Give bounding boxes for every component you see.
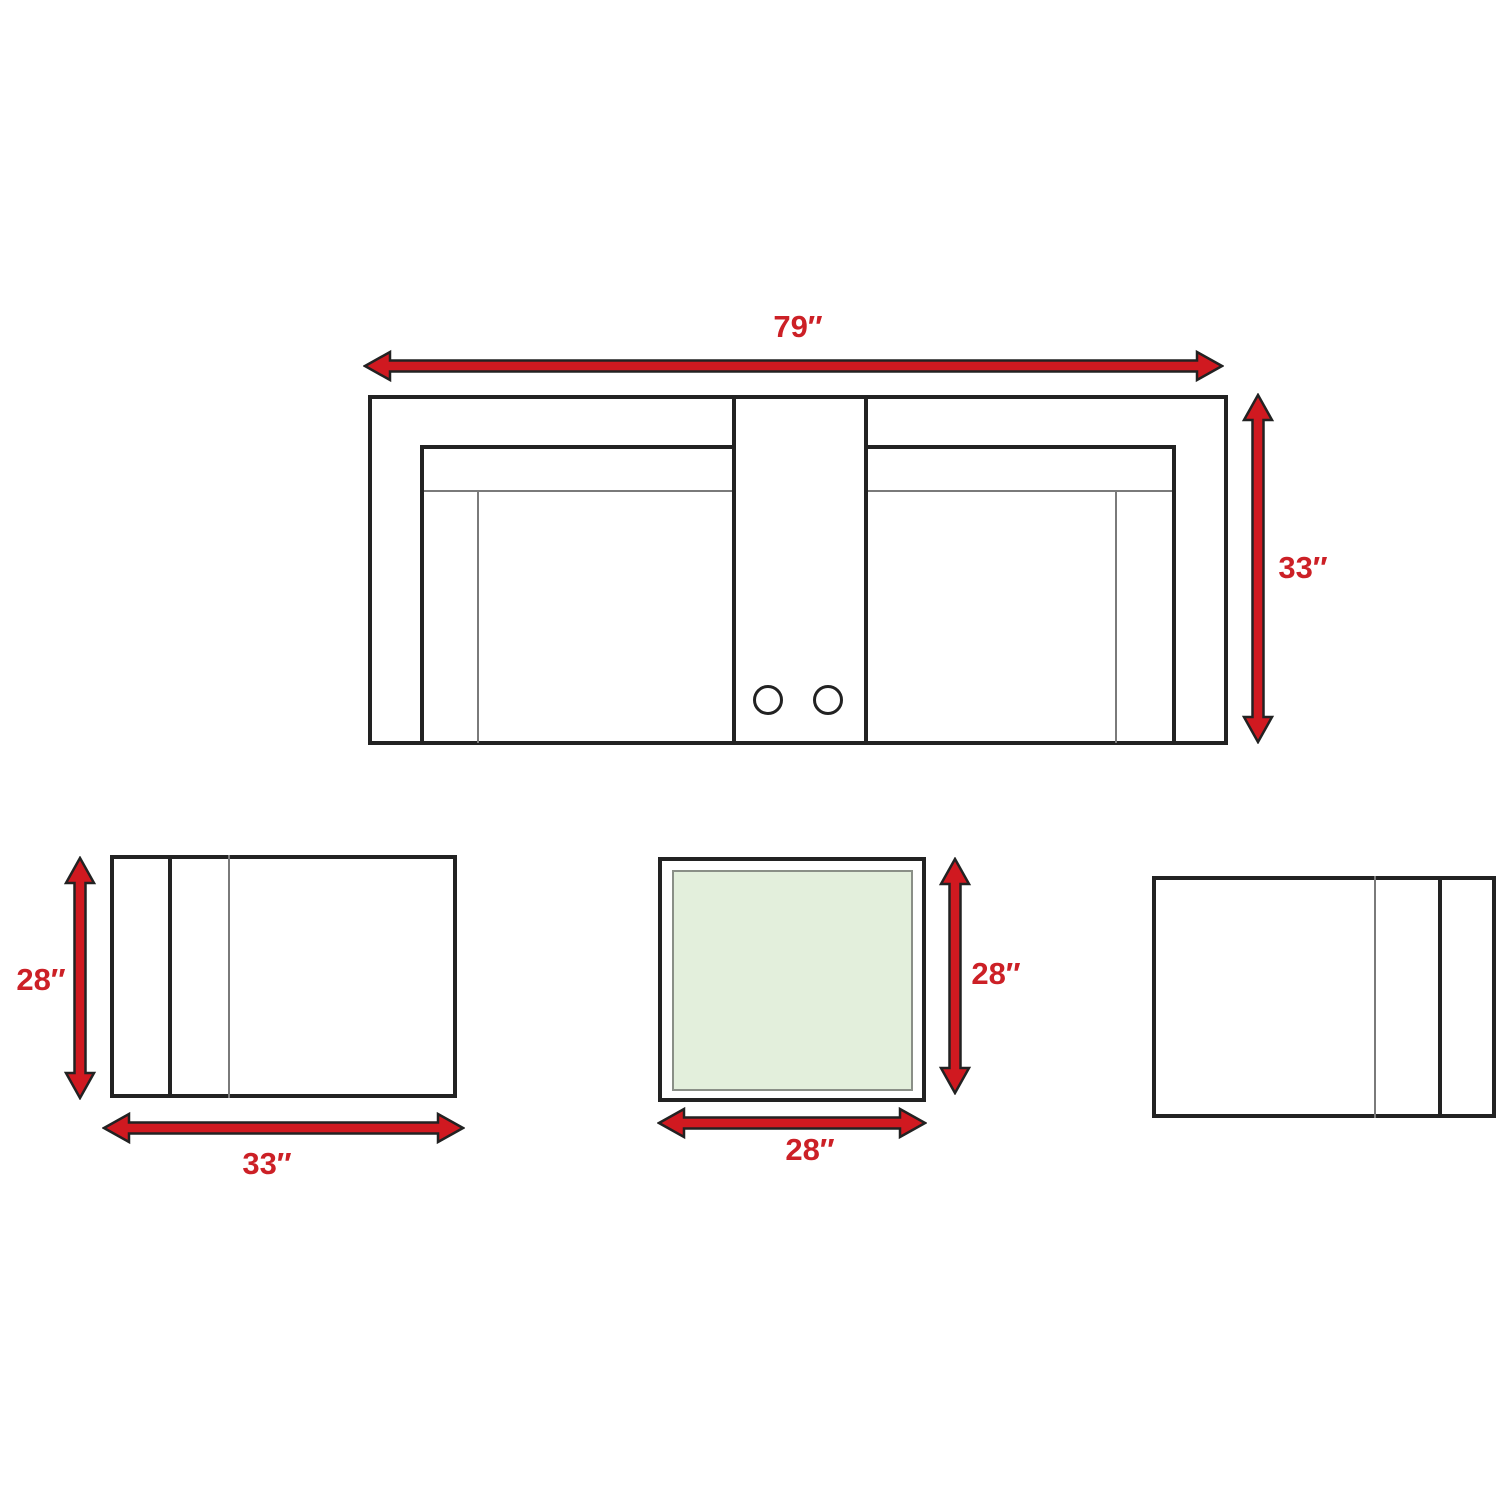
furniture-dimensions-diagram: 79″ 33″ 28″ 33″ 28″ 28″	[0, 0, 1500, 1500]
chair-left-width-label: 33″	[242, 1146, 291, 1182]
sofa-right-armrest-inner-edge	[1172, 445, 1176, 745]
table-depth-dimension-arrow-icon	[935, 857, 975, 1095]
cup-holder-left-icon	[753, 685, 783, 715]
chair-right-armrest-line	[1438, 876, 1442, 1118]
sofa-right-seat-cushion-line	[868, 490, 1172, 492]
sofa-left-seat-divider-line	[477, 490, 479, 743]
sofa-right-seat-divider-line	[1115, 490, 1117, 743]
chair-left-depth-dimension-arrow-icon	[60, 856, 100, 1100]
chair-left-outline	[110, 855, 457, 1098]
sofa-left-seat-back-edge	[420, 445, 734, 449]
sofa-width-label: 79″	[773, 309, 822, 345]
table-glass-top	[672, 870, 913, 1091]
chair-left-width-dimension-arrow-icon	[102, 1108, 465, 1148]
table-depth-label: 28″	[971, 956, 1020, 992]
sofa-right-seat-back-edge	[866, 445, 1176, 449]
sofa-depth-label: 33″	[1278, 550, 1327, 586]
chair-left-depth-label: 28″	[16, 962, 65, 998]
chair-right-cushion-line	[1374, 876, 1376, 1118]
table-width-label: 28″	[785, 1132, 834, 1168]
sofa-width-dimension-arrow-icon	[363, 346, 1224, 386]
sofa-left-seat-cushion-line	[424, 490, 732, 492]
chair-right-outline	[1152, 876, 1496, 1118]
sofa-depth-dimension-arrow-icon	[1238, 393, 1278, 744]
chair-left-armrest-line	[168, 855, 172, 1098]
chair-left-cushion-line	[228, 855, 230, 1098]
cup-holder-right-icon	[813, 685, 843, 715]
